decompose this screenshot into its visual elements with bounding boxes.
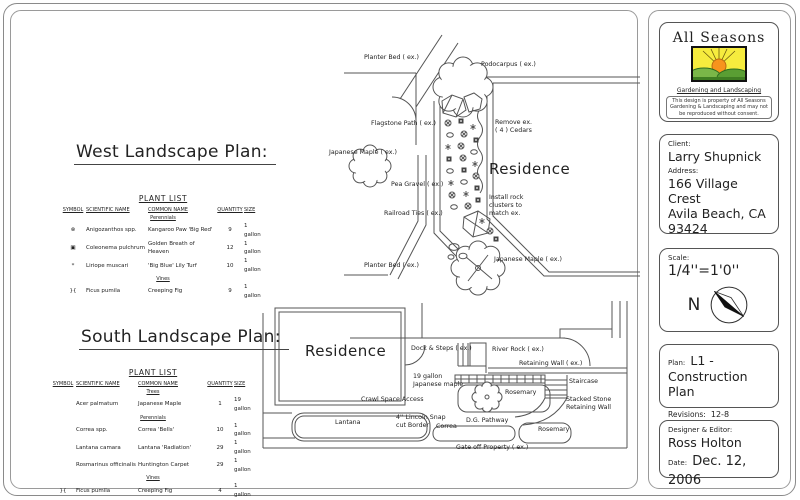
col-scientific: SCIENTIFIC NAME xyxy=(86,206,148,214)
plant-symbol: }{ xyxy=(50,487,76,496)
size: 1 gallon xyxy=(234,439,256,457)
common-name: Japanese Maple xyxy=(138,400,206,409)
label-planter-bed-top: Planter Bed ( ex.) xyxy=(364,54,419,62)
plant-symbol: * xyxy=(60,262,86,271)
scientific-name: Ficus pumila xyxy=(86,287,148,296)
col-symbol: SYMBOL xyxy=(50,380,76,388)
label-podocarpus: Podocarpus ( ex.) xyxy=(481,61,536,69)
scale-block: Scale: 1/4''=1'0'' N xyxy=(659,248,779,332)
common-name: Creeping Fig xyxy=(148,287,216,296)
copyright-disclaimer: This design is property of All Seasons G… xyxy=(666,96,772,119)
designer-name: Ross Holton xyxy=(668,435,770,450)
designer-block: Designer & Editor: Ross Holton Date: Dec… xyxy=(659,420,779,478)
company-logo-block: All Seasons Gardening and Landscaping Th… xyxy=(659,22,779,122)
scale-label: Scale: xyxy=(668,254,770,263)
common-name: Kangaroo Paw 'Big Red' xyxy=(148,226,216,235)
size: 1 gallon xyxy=(244,283,266,301)
client-label: Client: xyxy=(668,140,770,149)
plant-row: }{ Ficus pumila Creeping Fig 4 1 gallon xyxy=(50,482,256,500)
col-quantity: QUANTITY xyxy=(216,206,244,214)
col-size: SIZE xyxy=(244,206,266,214)
size: 1 gallon xyxy=(244,240,266,258)
plant-symbol: }{ xyxy=(60,287,86,296)
address-line: 93424 xyxy=(668,221,770,236)
label-japanese-maple-right: Japanese Maple ( ex.) xyxy=(494,256,562,264)
quantity: 4 xyxy=(206,487,234,496)
label-pea-gravel: Pea Gravel ( ex.) xyxy=(391,181,443,189)
section-vines: Vines xyxy=(50,474,256,482)
label-crawl-space: Crawl Space Access xyxy=(361,396,424,404)
scale-value: 1/4''=1'0'' xyxy=(668,263,770,280)
north-letter: N xyxy=(688,295,701,315)
section-perennials: Perennials xyxy=(50,414,256,422)
label-dock-steps: Dock & Steps ( ex.) xyxy=(411,345,472,353)
address-line: 166 Village Crest xyxy=(668,176,770,206)
plant-list-header: SYMBOL SCIENTIFIC NAME COMMON NAME QUANT… xyxy=(60,206,266,214)
plan-info-block: Plan: L1 - Construction Plan Revisions: … xyxy=(659,344,779,408)
quantity: 1 xyxy=(206,400,234,409)
client-name: Larry Shupnick xyxy=(668,149,770,164)
scientific-name: Anigozanthos spp. xyxy=(86,226,148,235)
label-lantana: Lantana xyxy=(335,419,361,427)
label-rosemary-1: Rosemary xyxy=(505,389,536,397)
south-plan-title: South Landscape Plan: xyxy=(79,327,289,350)
label-19gal-maple: 19 gallon Japanese maple xyxy=(413,373,463,389)
label-retaining-wall: Retaining Wall ( ex.) xyxy=(519,360,582,368)
label-rosemary-2: Rosemary xyxy=(538,426,569,434)
plan-label: Plan: xyxy=(668,359,685,367)
west-plant-list: PLANT LIST SYMBOL SCIENTIFIC NAME COMMON… xyxy=(60,194,266,300)
date-label: Date: xyxy=(668,459,687,467)
scientific-name: Liriope muscari xyxy=(86,262,148,271)
company-name: All Seasons xyxy=(673,30,766,46)
west-plan-title: West Landscape Plan: xyxy=(74,142,276,165)
plan-number: L1 - xyxy=(690,353,713,368)
section-perennials: Perennials xyxy=(60,214,266,222)
label-railroad-ties: Railroad Ties ( ex.) xyxy=(384,210,443,218)
col-common: COMMON NAME xyxy=(138,380,206,388)
quantity: 29 xyxy=(206,444,234,453)
label-staircase: Staircase xyxy=(569,378,598,386)
label-remove-cedars: Remove ex. ( 4 ) Cedars xyxy=(495,119,532,135)
revisions-value: 12-8 xyxy=(711,410,729,419)
north-arrow-icon xyxy=(708,284,750,326)
label-stacked-stone: Stacked Stone Retaining Wall xyxy=(566,396,611,412)
plant-symbol: ⊗ xyxy=(60,226,86,235)
sunrise-logo-icon xyxy=(691,46,747,82)
label-residence-south: Residence xyxy=(305,342,386,362)
quantity: 10 xyxy=(206,426,234,435)
plant-row: Lantana camara Lantana 'Radiation' 29 1 … xyxy=(50,439,256,457)
quantity: 9 xyxy=(216,287,244,296)
label-flagstone-path: Flagstone Path ( ex.) xyxy=(371,120,436,128)
plant-list-title: PLANT LIST xyxy=(60,194,266,203)
plant-row: * Liriope muscari 'Big Blue' Lily Turf 1… xyxy=(60,257,266,275)
quantity: 9 xyxy=(216,226,244,235)
plant-row: Acer palmatum Japanese Maple 1 19 gallon xyxy=(50,396,256,414)
company-tagline: Gardening and Landscaping xyxy=(666,87,772,94)
south-plant-list: PLANT LIST SYMBOL SCIENTIFIC NAME COMMON… xyxy=(50,368,256,500)
col-size: SIZE xyxy=(234,380,256,388)
common-name: Lantana 'Radiation' xyxy=(138,444,206,453)
label-japanese-maple-left: Japanese Maple ( ex.) xyxy=(329,149,397,157)
section-trees: Trees xyxy=(50,388,256,396)
label-residence-west: Residence xyxy=(489,160,570,180)
label-dg-pathway: D.G. Pathway xyxy=(466,417,508,425)
quantity: 29 xyxy=(206,461,234,470)
plant-row: ▣ Coleonema pulchrum Golden Breath of He… xyxy=(60,240,266,258)
scientific-name: Coleonema pulchrum xyxy=(86,244,148,253)
size: 1 gallon xyxy=(244,257,266,275)
label-river-rock: River Rock ( ex.) xyxy=(492,346,544,354)
plant-row: }{ Ficus pumila Creeping Fig 9 1 gallon xyxy=(60,283,266,301)
scientific-name: Rosmarinus officinalis xyxy=(76,461,138,470)
scientific-name: Ficus pumila xyxy=(76,487,138,496)
section-vines: Vines xyxy=(60,275,266,283)
size: 1 gallon xyxy=(234,422,256,440)
plan-name: Construction Plan xyxy=(668,369,770,399)
designer-label: Designer & Editor: xyxy=(668,426,770,435)
col-quantity: QUANTITY xyxy=(206,380,234,388)
quantity: 10 xyxy=(216,262,244,271)
common-name: Huntington Carpet xyxy=(138,461,206,470)
col-scientific: SCIENTIFIC NAME xyxy=(76,380,138,388)
label-install-rock: Install rock clusters to match ex. xyxy=(489,194,523,219)
scientific-name: Correa spp. xyxy=(76,426,138,435)
scientific-name: Lantana camara xyxy=(76,444,138,453)
plant-symbol: ▣ xyxy=(60,244,86,253)
address-line: Avila Beach, CA xyxy=(668,206,770,221)
quantity: 12 xyxy=(216,244,244,253)
size: 19 gallon xyxy=(234,396,256,414)
plant-row: ⊗ Anigozanthos spp. Kangaroo Paw 'Big Re… xyxy=(60,222,266,240)
client-info-block: Client: Larry Shupnick Address: 166 Vill… xyxy=(659,134,779,234)
label-gate: Gate off Property ( ex.) xyxy=(456,444,528,452)
plant-row: Correa spp. Correa 'Bells' 10 1 gallon xyxy=(50,422,256,440)
scientific-name: Acer palmatum xyxy=(76,400,138,409)
address-label: Address: xyxy=(668,167,770,176)
label-correa: Correa xyxy=(436,423,457,431)
common-name: Correa 'Bells' xyxy=(138,426,206,435)
plant-list-title: PLANT LIST xyxy=(50,368,256,377)
common-name: Creeping Fig xyxy=(138,487,206,496)
common-name: 'Big Blue' Lily Turf xyxy=(148,262,216,271)
size: 1 gallon xyxy=(234,457,256,475)
label-planter-bed-bottom: Planter Bed ( ex.) xyxy=(364,262,419,270)
size: 1 gallon xyxy=(244,222,266,240)
col-symbol: SYMBOL xyxy=(60,206,86,214)
col-common: COMMON NAME xyxy=(148,206,216,214)
plant-list-header: SYMBOL SCIENTIFIC NAME COMMON NAME QUANT… xyxy=(50,380,256,388)
size: 1 gallon xyxy=(234,482,256,500)
plant-row: Rosmarinus officinalis Huntington Carpet… xyxy=(50,457,256,475)
revisions-label: Revisions: xyxy=(668,410,706,419)
common-name: Golden Breath of Heaven xyxy=(148,240,216,258)
